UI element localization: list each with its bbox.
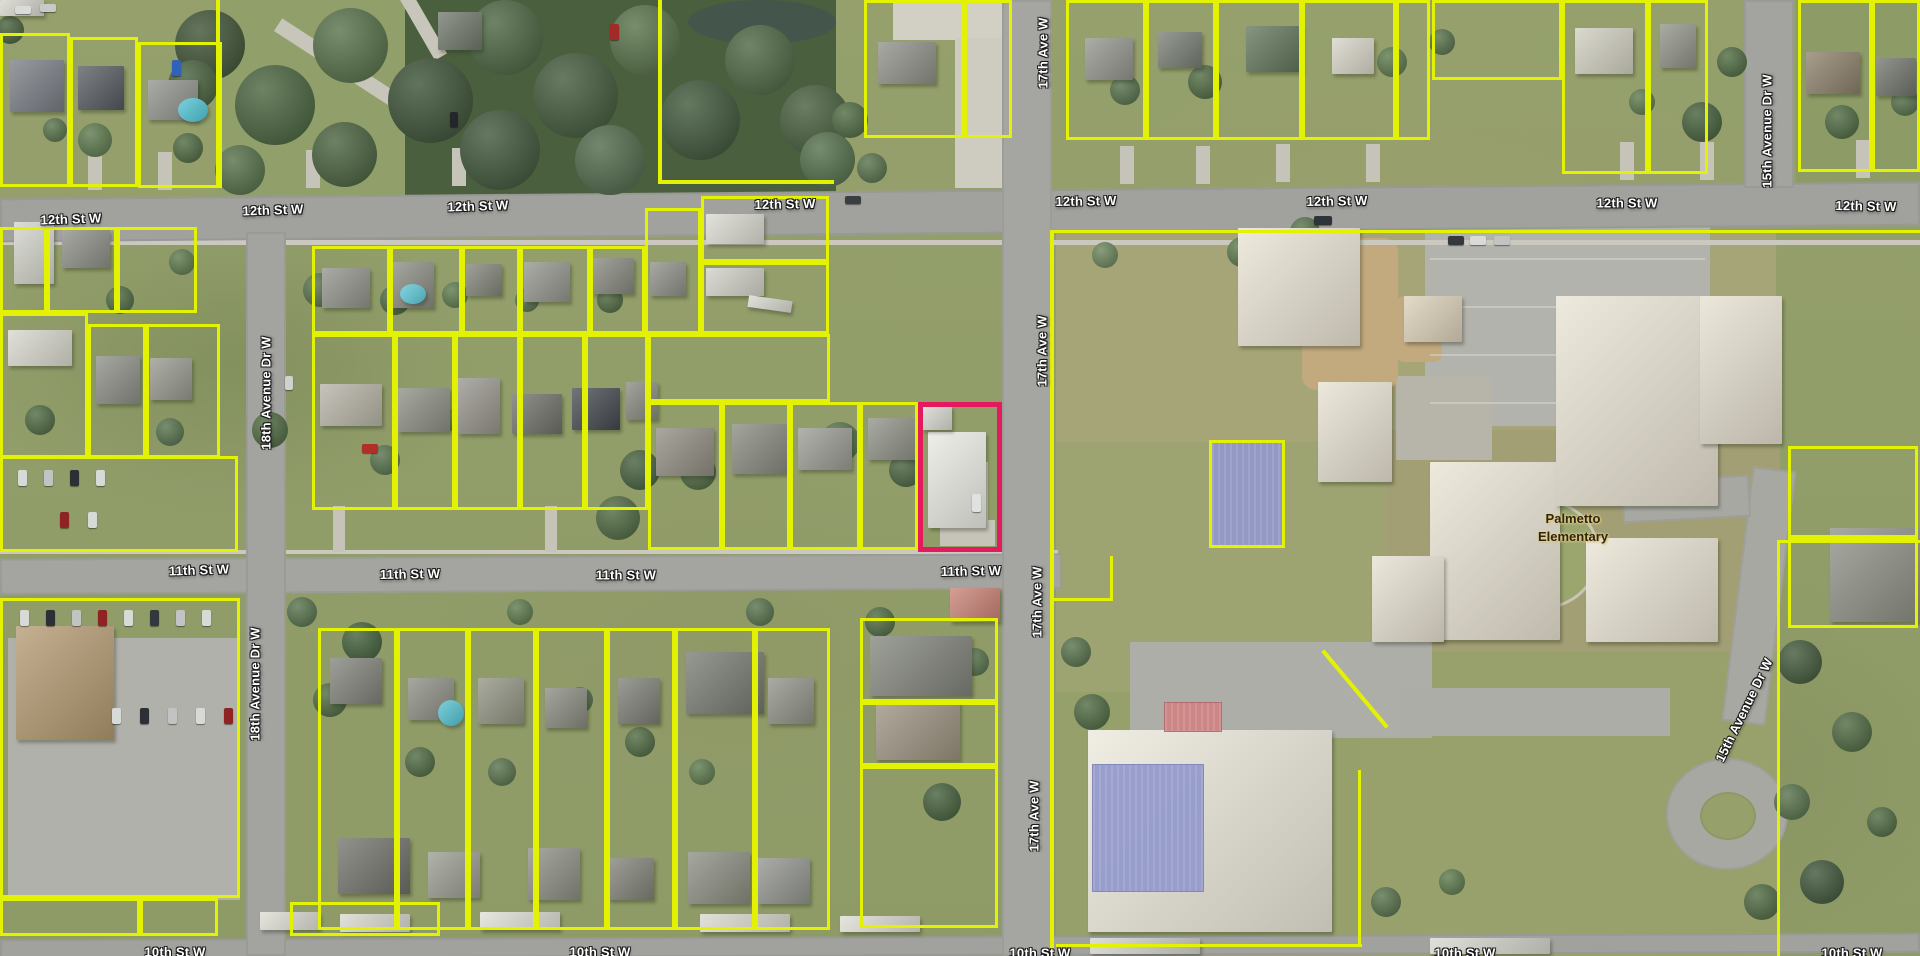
map-viewport[interactable]: 12th St W12th St W12th St W12th St W12th… <box>0 0 1920 956</box>
map-canvas[interactable]: 12th St W12th St W12th St W12th St W12th… <box>0 0 1920 956</box>
layer-place_labels: Palmetto Elementary <box>0 0 1920 956</box>
place-label-palmetto-elementary: Palmetto Elementary <box>1525 510 1621 546</box>
